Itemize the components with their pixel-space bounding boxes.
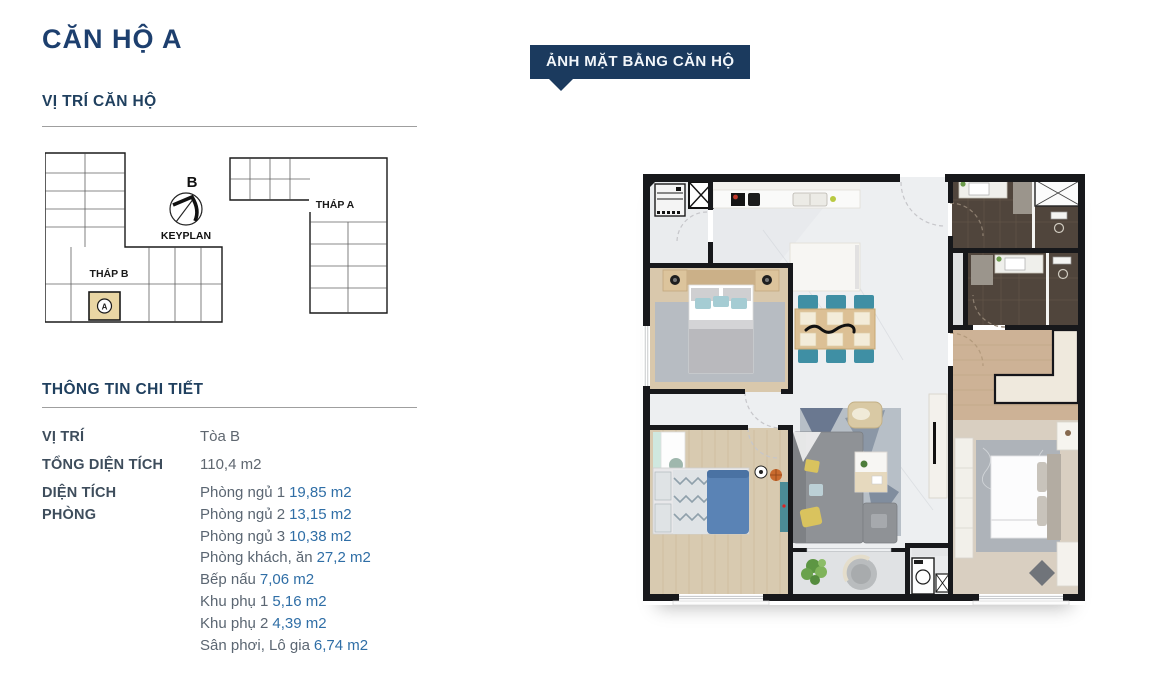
room-area-item: Khu phụ 15,16 m2 <box>200 591 432 613</box>
keyplan-compass: B KEYPLAN <box>161 174 211 242</box>
floor-plan-badge: ẢNH MẶT BẰNG CĂN HỘ <box>530 45 750 79</box>
keyplan-diagram: THÁP B A B KEYPLAN <box>45 147 420 342</box>
room-area-list: Phòng ngủ 119,85 m2 Phòng ngủ 213,15 m2 … <box>200 482 432 656</box>
location-section-heading: VỊ TRÍ CĂN HỘ <box>42 93 157 111</box>
section-divider <box>42 407 417 408</box>
apartment-detail-page: CĂN HỘ A VỊ TRÍ CĂN HỘ THÁP B <box>0 0 1153 697</box>
floor-plan-image <box>643 170 1085 605</box>
tower-a-label: THÁP A <box>316 198 355 211</box>
page-title: CĂN HỘ A <box>42 24 183 55</box>
detail-label: VỊ TRÍ <box>42 426 200 448</box>
room-area-item: Phòng ngủ 310,38 m2 <box>200 526 432 548</box>
room-area-item: Sân phơi, Lô gia6,74 m2 <box>200 635 432 657</box>
detail-label-room-areas: DIỆN TÍCH PHÒNG <box>42 482 200 656</box>
details-table: VỊ TRÍ Tòa B TỔNG DIỆN TÍCH 110,4 m2 DIỆ… <box>42 426 432 656</box>
detail-value: 110,4 m2 <box>200 454 432 476</box>
room-area-item: Bếp nấu7,06 m2 <box>200 569 432 591</box>
room-area-item: Phòng khách, ăn27,2 m2 <box>200 547 432 569</box>
room-area-item: Phòng ngủ 119,85 m2 <box>200 482 432 504</box>
details-section-heading: THÔNG TIN CHI TIẾT <box>42 381 203 399</box>
dining-area <box>795 295 875 363</box>
detail-value: Tòa B <box>200 426 432 448</box>
room-area-item: Khu phụ 24,39 m2 <box>200 613 432 635</box>
detail-row-total-area: TỔNG DIỆN TÍCH 110,4 m2 <box>42 454 432 482</box>
keyplan-tower-a <box>230 158 387 313</box>
unit-a-marker: A <box>89 292 120 320</box>
tower-b-label: THÁP B <box>90 267 129 280</box>
badge-pointer-icon <box>548 78 574 91</box>
section-divider <box>42 126 417 127</box>
north-label: B <box>187 174 198 191</box>
detail-row-location: VỊ TRÍ Tòa B <box>42 426 432 454</box>
room-area-item: Phòng ngủ 213,15 m2 <box>200 504 432 526</box>
detail-label: TỔNG DIỆN TÍCH <box>42 454 200 476</box>
keyplan-caption: KEYPLAN <box>161 230 211 242</box>
svg-text:A: A <box>102 303 108 312</box>
detail-row-room-areas: DIỆN TÍCH PHÒNG Phòng ngủ 119,85 m2 Phòn… <box>42 482 432 656</box>
